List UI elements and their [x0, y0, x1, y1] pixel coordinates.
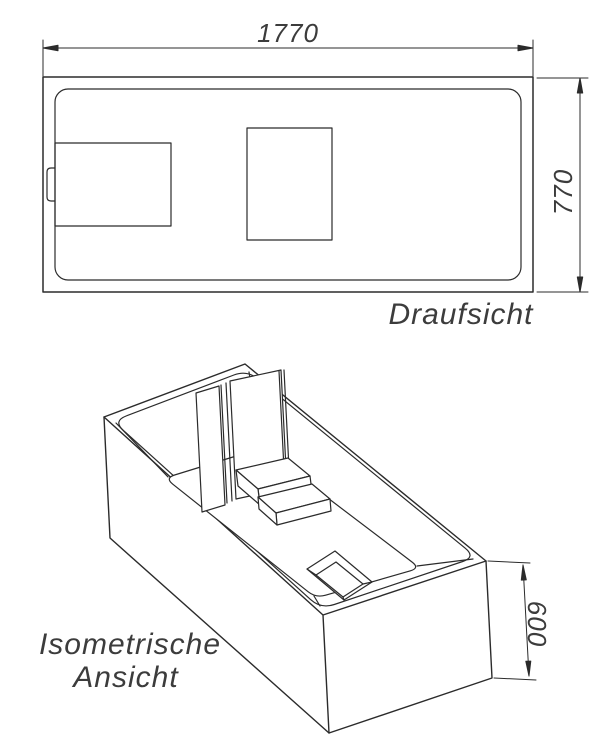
plan-inner-rim — [55, 89, 521, 280]
dimension-arrow-up — [521, 565, 526, 580]
top-view-caption: Draufsicht — [361, 297, 561, 333]
iso-corner-fold-west — [116, 423, 168, 477]
dimension-arrow-down — [577, 277, 582, 292]
dim-depth-label: 770 — [543, 152, 583, 232]
iso-view-caption-line1: Isometrische — [30, 628, 230, 662]
plan-center-pocket — [247, 128, 332, 240]
iso-corner-fold-east — [417, 559, 473, 566]
technical-drawing-sheet: 1770 770 Draufsicht Isometrische Ansicht… — [0, 0, 612, 749]
iso-view-caption-line2: Ansicht — [26, 661, 226, 695]
dimension-arrow-right — [518, 45, 533, 50]
extension-line — [494, 678, 536, 680]
plan-outer-rectangle — [43, 77, 533, 292]
dim-width-label: 1770 — [188, 18, 388, 48]
plan-left-cutout — [55, 143, 171, 226]
dim-height-label: 600 — [517, 584, 557, 664]
extension-line — [488, 561, 530, 563]
top-view-plan-drawing — [43, 77, 533, 292]
dimension-arrow-left — [43, 45, 58, 50]
dimension-arrow-up — [577, 78, 582, 93]
plan-left-notch — [47, 168, 55, 201]
